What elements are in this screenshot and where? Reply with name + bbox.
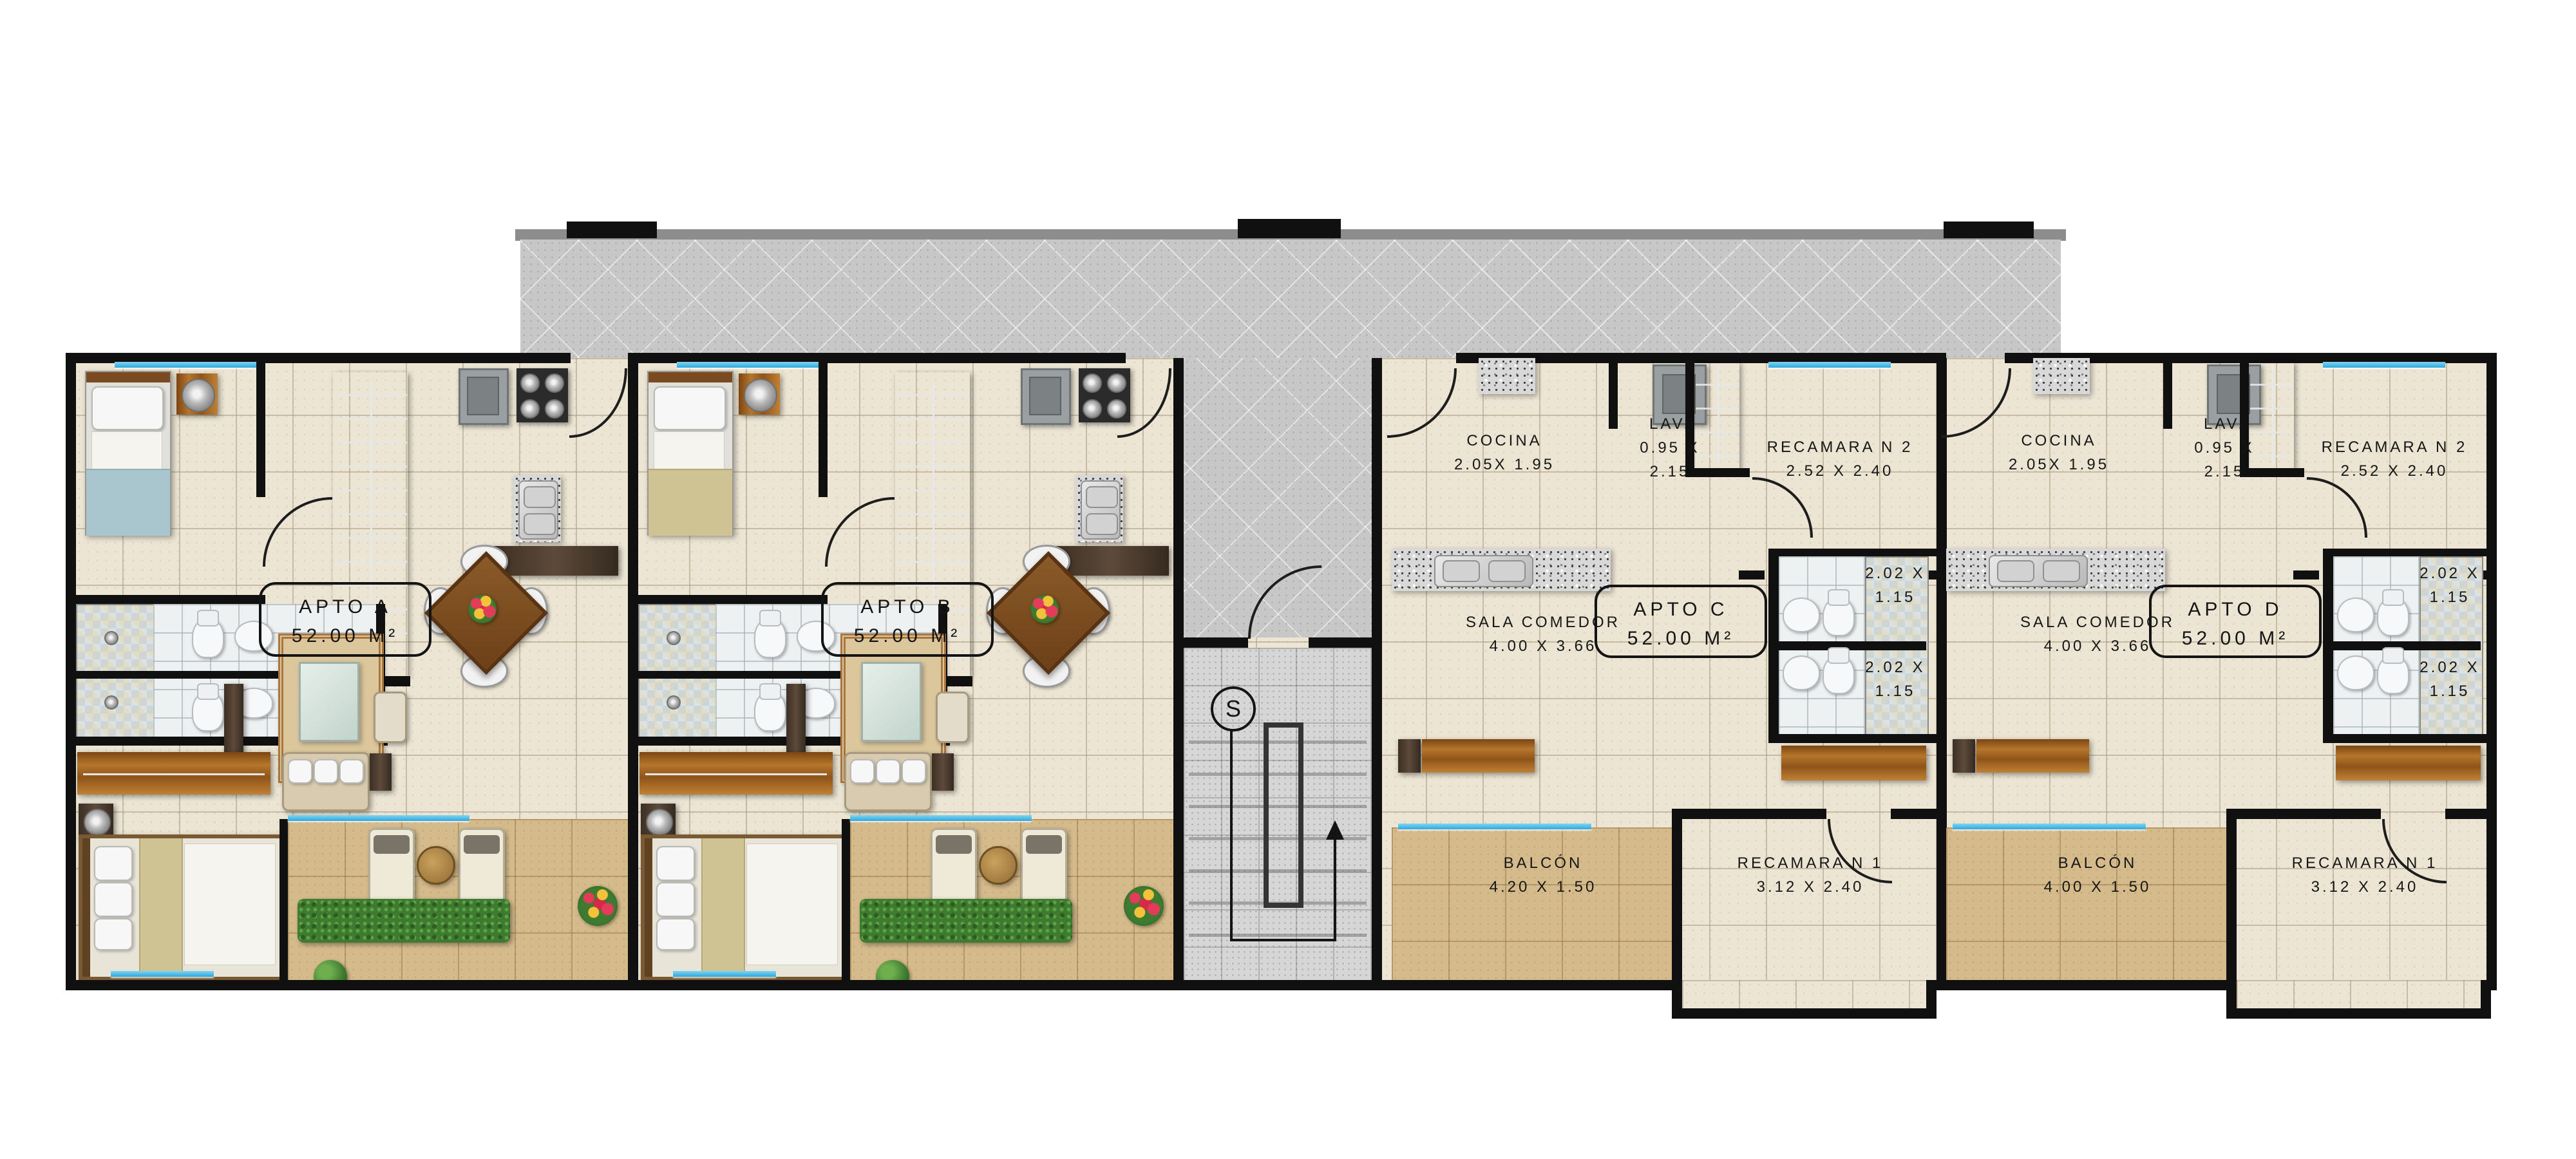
nightstand (176, 373, 218, 415)
bath1-label: 2.02 X 1.15 (2418, 561, 2481, 609)
lav-label: LAV.0.95 X 2.15 (1634, 412, 1705, 484)
kitchen-wall (1609, 358, 1618, 429)
bottom-wall (66, 980, 1682, 990)
bedroom-wall (1672, 809, 1682, 1019)
door-swing (2307, 477, 2367, 538)
sideboard (491, 546, 618, 576)
balcony-table (417, 846, 455, 885)
single-bed (647, 371, 734, 536)
sliding-door (1953, 824, 2146, 829)
blanket (86, 469, 170, 536)
bottom-wall (1937, 980, 2226, 990)
bedroom-wall (2226, 809, 2381, 819)
toilet (192, 618, 224, 658)
sofa (844, 752, 932, 811)
sideboard (1422, 739, 1535, 773)
sliding-door (1398, 824, 1591, 829)
tv-cabinet (1398, 739, 1421, 773)
bathroom-wall (2323, 734, 2486, 743)
toilet (2377, 598, 2409, 636)
balcony (1946, 827, 2226, 980)
cocina-label: COCINA2.05X 1.95 (1975, 429, 2143, 476)
corridor-hall (520, 240, 2061, 358)
cocina-label: COCINA2.05X 1.95 (1421, 429, 1588, 476)
bedroom-wall (2293, 570, 2319, 579)
bed-runner (139, 838, 183, 977)
roof-column (1944, 221, 2034, 238)
balcony-wall (279, 819, 289, 980)
dresser (1781, 746, 1926, 780)
bedroom-wall (1672, 809, 1826, 819)
tv-cabinet (1953, 739, 1975, 773)
window (2323, 362, 2445, 368)
door-swing (1752, 477, 1813, 538)
hedge (860, 899, 1072, 943)
lav-label: LAV.0.95 X 2.15 (2189, 412, 2260, 484)
apartment-badge: APTO C 52.00 M² (1595, 585, 1767, 658)
roof-column (1238, 219, 1341, 238)
bed-runner (701, 838, 745, 977)
stair-door-wall (1309, 637, 1372, 648)
stairwell: S (1184, 648, 1372, 980)
door-swing (569, 368, 627, 438)
side-table (370, 753, 392, 791)
balcony-table (979, 846, 1018, 885)
window (1768, 362, 1891, 368)
apartment-name: APTO A (261, 592, 429, 621)
double-bed (641, 834, 848, 980)
bedroom-wall (1672, 1008, 1937, 1019)
balcon-label: BALCÓN4.20 X 1.50 (1443, 851, 1643, 899)
laundry-tub (459, 368, 509, 425)
bathroom-wall (1768, 549, 1779, 742)
bedroom-wall (2445, 809, 2486, 819)
bedroom1-floor (2237, 980, 2481, 1008)
apartment-c: 2.02 X 1.15 2.02 X 1.15 COCINA2.05X 1.95… (1382, 358, 1937, 980)
sliding-door (288, 815, 469, 821)
bedroom-wall (256, 358, 265, 497)
dresser (2336, 746, 2481, 780)
kitchen-wall (2163, 358, 2172, 429)
shower-drain (104, 695, 118, 710)
right-wall (2486, 353, 2497, 990)
sofa (282, 752, 370, 811)
roof-column (567, 221, 657, 238)
apartment-d: 2.02 X 1.15 2.02 X 1.15 COCINA2.05X 1.95… (1937, 358, 2486, 980)
window (677, 362, 819, 368)
recamara2-label: RECAMARA N 22.52 X 2.40 (1748, 435, 1932, 483)
wardrobe (639, 752, 833, 795)
bath1-label: 2.02 X 1.15 (1864, 561, 1927, 609)
armchair (374, 692, 407, 743)
apartment-area: 52.00 M² (1597, 624, 1765, 653)
blanket (649, 469, 732, 536)
sink-basin (1783, 598, 1820, 632)
apartment-badge: APTO A 52.00 M² (259, 582, 431, 657)
apartment-a: APTO A 52.00 M² (66, 358, 628, 980)
stair-door-wall (1184, 637, 1248, 648)
window (673, 971, 776, 977)
shower-drain (667, 695, 681, 710)
sliding-door (850, 815, 1032, 821)
kitchen-top-counter (2033, 358, 2090, 394)
bathroom-wall (1779, 641, 1926, 650)
stair-path-run (1230, 939, 1336, 941)
alarm-clock (79, 804, 113, 838)
bathroom-wall (2333, 641, 2481, 650)
apartment-area: 52.00 M² (261, 621, 429, 650)
stair-letter: S (1226, 695, 1241, 722)
armchair (936, 692, 969, 743)
toilet (1823, 655, 1855, 694)
coffee-table (299, 662, 359, 742)
coffee-table (861, 662, 922, 742)
door-swing (1387, 368, 1457, 438)
bathroom-wall (2323, 549, 2486, 556)
stove (516, 368, 568, 422)
kitchen-counter (1946, 549, 2165, 591)
window (111, 971, 214, 977)
shower-drain (667, 631, 681, 645)
bedroom-wall (1739, 570, 1765, 579)
bathroom-wall (2323, 549, 2333, 742)
apartment-area: 52.00 M² (824, 621, 991, 650)
bedroom-wall (628, 595, 828, 604)
bath2-label: 2.02 X 1.15 (2418, 655, 2481, 703)
apartment-name: APTO C (1597, 595, 1765, 624)
apartment-badge: APTO D 52.00 M² (2149, 585, 2322, 658)
kitchen-counter (513, 475, 561, 542)
apartment-name: APTO D (2152, 595, 2319, 624)
sink-basin (1783, 655, 1820, 690)
toilet (754, 618, 786, 658)
hedge (298, 899, 510, 943)
stair-rail (1264, 722, 1303, 908)
stair-direction-arrow (1326, 820, 1344, 840)
bedroom-wall (1891, 809, 1937, 819)
floor-plan: S (0, 0, 2576, 1159)
door-swing (263, 497, 332, 567)
door-swing (1942, 368, 2011, 438)
sink-basin (2337, 655, 2374, 690)
table-flowers (468, 595, 497, 623)
corridor-wall (1372, 358, 1382, 980)
balcony (1392, 827, 1672, 980)
kitchen-counter (1392, 549, 1611, 591)
bathroom-wall (1768, 549, 1937, 556)
bath2-label: 2.02 X 1.15 (1864, 655, 1927, 703)
bedroom-wall (66, 595, 265, 604)
toilet (754, 692, 786, 731)
side-table (932, 753, 954, 791)
nightstand (739, 373, 780, 415)
recamara1-label: RECAMARA N 13.12 X 2.40 (1691, 851, 1929, 899)
shower-drain (104, 631, 118, 645)
alarm-clock (641, 804, 676, 838)
table-flowers (1030, 595, 1059, 623)
corridor-wall (1173, 358, 1184, 980)
kitchen-counter (1075, 475, 1123, 542)
stair-path-rise (1334, 838, 1336, 941)
flower-pot (1124, 886, 1164, 926)
toilet (192, 692, 224, 731)
bedroom1-floor (1682, 980, 1926, 1008)
sideboard (1976, 739, 2089, 773)
balcon-label: BALCÓN4.00 X 1.50 (1998, 851, 2197, 899)
recamara1-label: RECAMARA N 13.12 X 2.40 (2246, 851, 2484, 899)
bedroom-wall (819, 358, 828, 497)
flower-pot (578, 886, 618, 926)
apartment-area: 52.00 M² (2152, 624, 2319, 653)
window (115, 362, 256, 368)
door-swing (1117, 368, 1171, 438)
sink-basin (2337, 598, 2374, 632)
door-swing (825, 497, 895, 567)
kitchen-top-counter (1479, 358, 1535, 394)
stair-path-stem (1230, 729, 1233, 941)
stair-tread (1189, 934, 1367, 937)
sideboard (1053, 546, 1169, 576)
bathroom-wall (1768, 734, 1937, 743)
toilet (2377, 655, 2409, 694)
balcony-wall (842, 819, 851, 980)
toilet (1823, 598, 1855, 636)
recamara2-label: RECAMARA N 22.52 X 2.40 (2302, 435, 2486, 483)
apartment-b: APTO B 52.00 M² (628, 358, 1173, 980)
bedroom-wall (2226, 809, 2237, 1019)
single-bed (85, 371, 171, 536)
apartment-name: APTO B (824, 592, 991, 621)
apartment-badge: APTO B 52.00 M² (821, 582, 994, 657)
stair-start-marker: S (1211, 686, 1256, 731)
wardrobe (77, 752, 270, 795)
double-bed (79, 834, 286, 980)
bedroom-wall (2226, 1008, 2491, 1019)
laundry-tub (1021, 368, 1071, 425)
